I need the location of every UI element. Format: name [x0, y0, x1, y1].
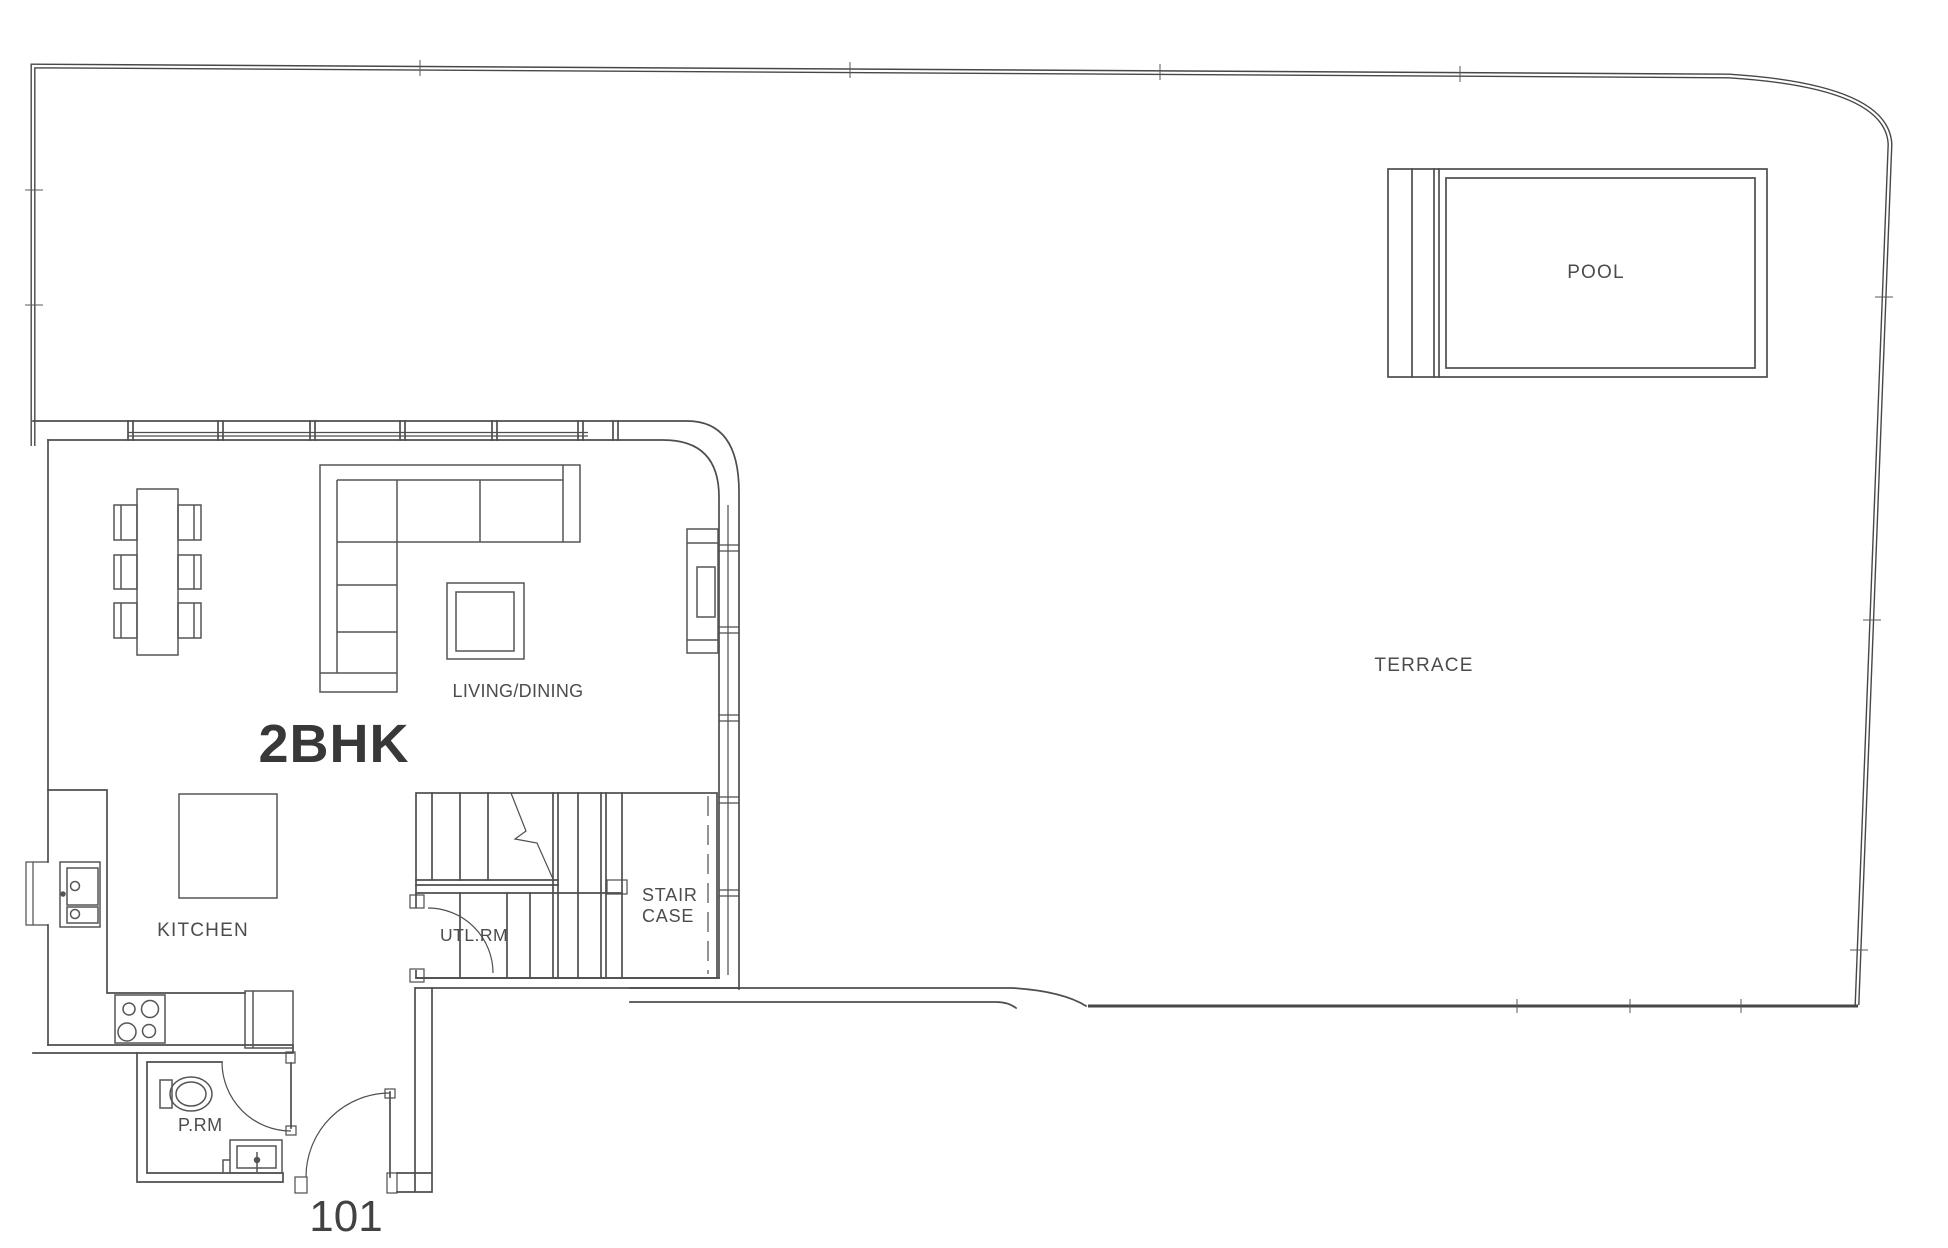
sofa [320, 465, 580, 692]
wall-top-right-inner [48, 440, 719, 978]
floor-plan-drawing: POOL TERRACE LIVING/DINING 2BHK KITCHEN … [0, 0, 1948, 1248]
kitchen-counter [48, 790, 245, 993]
wall-stair-bottom [416, 978, 739, 988]
stair-landing-divider [416, 880, 622, 893]
entrance-door-swing-arc [306, 1093, 390, 1177]
unit-number-label: 101 [309, 1192, 382, 1241]
right-wall-glazing-ticks [719, 545, 739, 896]
kitchen-label: KITCHEN [157, 920, 249, 941]
wash-basin [223, 1140, 282, 1173]
dining-chair [114, 505, 201, 638]
coffee-table [447, 583, 524, 659]
utility-room-label: UTL.RM [440, 925, 508, 945]
stair-newel [607, 880, 627, 894]
stair-treads-upper [432, 793, 488, 880]
floor-plan-page: POOL TERRACE LIVING/DINING 2BHK KITCHEN … [0, 0, 1948, 1248]
kitchen-area [48, 790, 293, 1048]
wall-kitchen-bottom [33, 1045, 293, 1053]
terrace-parapet [630, 988, 1086, 1008]
wall-top-right-outer [33, 421, 739, 989]
kitchen-sink [60, 862, 100, 927]
window-band-top [128, 421, 618, 440]
terrace-label: TERRACE [1374, 655, 1473, 676]
refrigerator [245, 991, 293, 1048]
powder-door-swing-arc [222, 1062, 291, 1131]
unit-type-label: 2BHK [258, 714, 409, 774]
dining-table-set [114, 489, 201, 655]
pool-label: POOL [1567, 262, 1625, 283]
stair-break-line [511, 793, 553, 879]
kitchen-island [179, 794, 277, 898]
property-boundary [25, 60, 1893, 1013]
left-wall-window [26, 862, 48, 925]
powder-room-label: P.RM [178, 1115, 223, 1135]
entrance-door [295, 1089, 397, 1193]
stove [115, 995, 165, 1043]
staircase-label-line2: CASE [642, 906, 694, 926]
tv-console [687, 529, 718, 653]
stair-treads-full [553, 793, 622, 978]
toilet [160, 1077, 212, 1111]
unit-walls [26, 421, 739, 1192]
wall-entry-hall [397, 988, 432, 1192]
boundary-tick-marks [25, 60, 1893, 1013]
dining-table [137, 489, 178, 655]
living-dining-label: LIVING/DINING [453, 681, 584, 701]
staircase-label-line1: STAIR [642, 885, 698, 905]
